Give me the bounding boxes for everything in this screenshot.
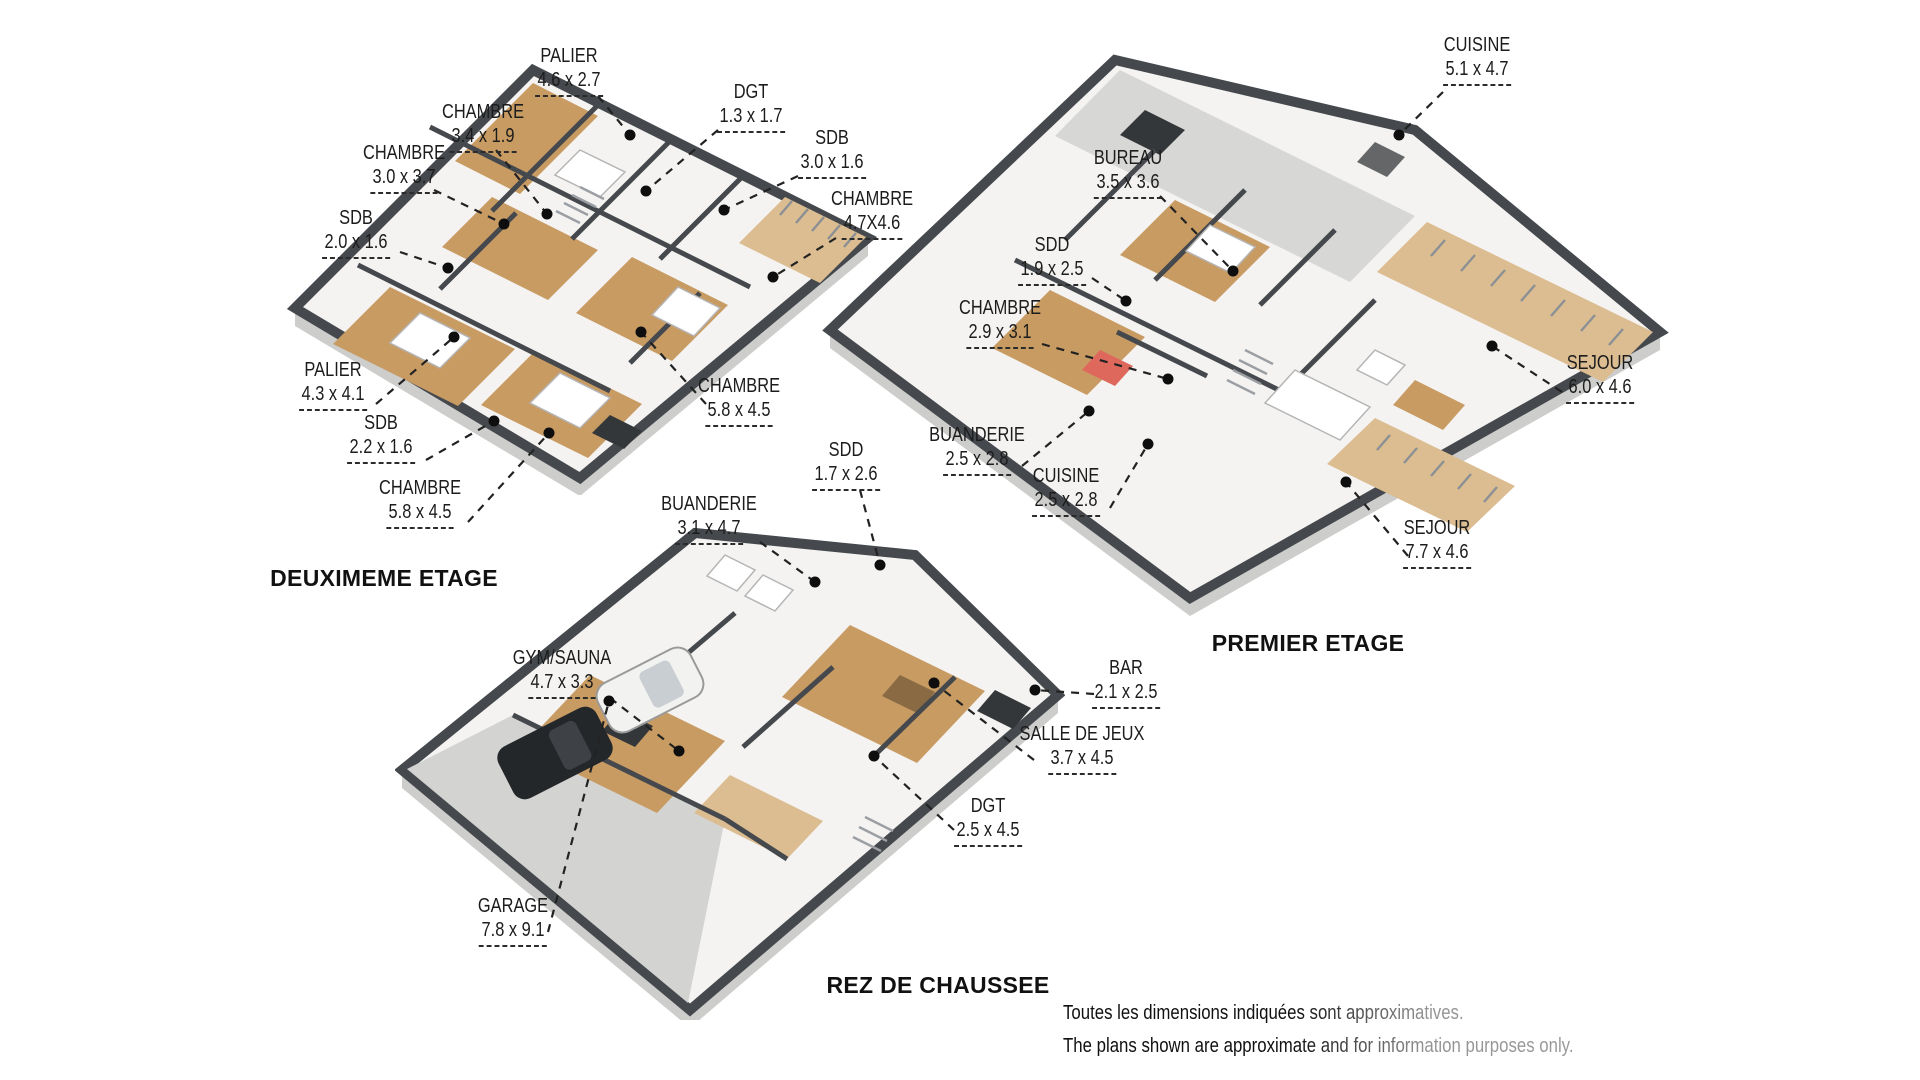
room-name: CHAMBRE — [959, 296, 1041, 320]
room-dims: 7.7 x 4.6 — [1403, 540, 1471, 569]
room-name: SDB — [347, 411, 415, 435]
room-dims: 7.8 x 9.1 — [479, 918, 547, 947]
room-name: SDB — [322, 206, 390, 230]
room-name: BUANDERIE — [929, 423, 1025, 447]
room-dims: 5.8 x 4.5 — [386, 500, 454, 529]
room-dims: 2.5 x 2.8 — [943, 447, 1011, 476]
disclaimer-line-fr: Toutes les dimensions indiquées sont app… — [1063, 997, 1574, 1030]
title-rez-de-chaussee: REZ DE CHAUSSEE — [826, 972, 1049, 999]
room-dims: 4.3 x 4.1 — [299, 382, 367, 411]
label-r-buanderie: BUANDERIE3.1 x 4.7 — [651, 492, 768, 545]
room-dims: 5.8 x 4.5 — [705, 398, 773, 427]
label-r-salle-de-jeux: SALLE DE JEUX3.7 x 4.5 — [1006, 722, 1158, 775]
disclaimer-text: Toutes les dimensions indiquées sont app… — [1063, 997, 1574, 1063]
room-name: PALIER — [535, 44, 603, 68]
room-name: CHAMBRE — [442, 100, 524, 124]
label-r-bar: BAR2.1 x 2.5 — [1085, 656, 1168, 709]
label-p-buanderie: BUANDERIE2.5 x 2.8 — [919, 423, 1036, 476]
room-dims: 4.7 x 3.3 — [528, 670, 596, 699]
label-r-dgt: DGT2.5 x 4.5 — [947, 794, 1030, 847]
room-dims: 2.5 x 2.8 — [1032, 488, 1100, 517]
label-d-palier-2: PALIER4.3 x 4.1 — [292, 358, 375, 411]
room-name: SDD — [1018, 233, 1086, 257]
label-r-garage: GARAGE7.8 x 9.1 — [470, 894, 556, 947]
room-name: BAR — [1092, 656, 1160, 680]
room-dims: 3.7 x 4.5 — [1048, 746, 1116, 775]
room-name: CHAMBRE — [698, 374, 780, 398]
room-name: BUREAU — [1094, 146, 1162, 170]
label-p-cuisine-25: CUISINE2.5 x 2.8 — [1025, 464, 1108, 517]
label-p-cuisine-51: CUISINE5.1 x 4.7 — [1436, 33, 1519, 86]
room-dims: 3.1 x 4.7 — [675, 516, 743, 545]
label-p-sdd: SDD1.9 x 2.5 — [1011, 233, 1094, 286]
label-d-sdb-20: SDB2.0 x 1.6 — [315, 206, 398, 259]
label-d-chambre-47: CHAMBRE4.7X4.6 — [822, 187, 922, 240]
room-name: SEJOUR — [1566, 351, 1634, 375]
room-dims: 1.9 x 2.5 — [1018, 257, 1086, 286]
title-premier-etage: PREMIER ETAGE — [1212, 630, 1405, 657]
label-d-sdb-30: SDB3.0 x 1.6 — [791, 126, 874, 179]
room-dims: 4.6 x 2.7 — [535, 68, 603, 97]
floor-plan-sheet: PALIER4.6 x 2.7 DGT1.3 x 1.7 CHAMBRE3.4 … — [0, 0, 1920, 1080]
room-dims: 2.5 x 4.5 — [954, 818, 1022, 847]
room-dims: 2.0 x 1.6 — [322, 230, 390, 259]
room-dims: 3.0 x 1.6 — [798, 150, 866, 179]
room-dims: 2.9 x 3.1 — [966, 320, 1034, 349]
room-name: GARAGE — [478, 894, 548, 918]
room-dims: 4.7X4.6 — [841, 211, 902, 240]
room-name: GYM/SAUNA — [513, 646, 611, 670]
room-name: SEJOUR — [1403, 516, 1471, 540]
title-deuxieme-etage: DEUXIMEME ETAGE — [270, 565, 498, 592]
disclaimer-line-en: The plans shown are approximate and for … — [1063, 1030, 1574, 1063]
label-p-bureau: BUREAU3.5 x 3.6 — [1086, 146, 1169, 199]
label-d-dgt: DGT1.3 x 1.7 — [710, 80, 793, 133]
label-p-chambre: CHAMBRE2.9 x 3.1 — [950, 296, 1050, 349]
label-d-chambre-58b: CHAMBRE5.8 x 4.5 — [689, 374, 789, 427]
label-d-chambre-58a: CHAMBRE5.8 x 4.5 — [370, 476, 470, 529]
label-d-chambre-30: CHAMBRE3.0 x 3.7 — [354, 141, 454, 194]
room-dims: 3.4 x 1.9 — [449, 124, 517, 153]
room-dims: 2.1 x 2.5 — [1092, 680, 1160, 709]
room-name: DGT — [954, 794, 1022, 818]
label-r-sdd: SDD1.7 x 2.6 — [805, 438, 888, 491]
room-name: BUANDERIE — [661, 492, 757, 516]
room-name: CUISINE — [1443, 33, 1511, 57]
room-dims: 3.5 x 3.6 — [1094, 170, 1162, 199]
room-name: SDD — [812, 438, 880, 462]
room-name: SALLE DE JEUX — [1020, 722, 1145, 746]
room-name: CHAMBRE — [379, 476, 461, 500]
label-r-gym: GYM/SAUNA4.7 x 3.3 — [502, 646, 622, 699]
room-name: CHAMBRE — [363, 141, 445, 165]
label-p-sejour-77: SEJOUR7.7 x 4.6 — [1396, 516, 1479, 569]
room-dims: 3.0 x 3.7 — [370, 165, 438, 194]
room-name: PALIER — [299, 358, 367, 382]
room-dims: 1.7 x 2.6 — [812, 462, 880, 491]
room-dims: 5.1 x 4.7 — [1443, 57, 1511, 86]
room-dims: 2.2 x 1.6 — [347, 435, 415, 464]
room-name: SDB — [798, 126, 866, 150]
label-d-palier-1: PALIER4.6 x 2.7 — [528, 44, 611, 97]
room-name: CHAMBRE — [831, 187, 913, 211]
label-d-sdb-22: SDB2.2 x 1.6 — [340, 411, 423, 464]
room-name: DGT — [717, 80, 785, 104]
label-p-sejour-60: SEJOUR6.0 x 4.6 — [1559, 351, 1642, 404]
room-dims: 1.3 x 1.7 — [717, 104, 785, 133]
room-dims: 6.0 x 4.6 — [1566, 375, 1634, 404]
room-name: CUISINE — [1032, 464, 1100, 488]
